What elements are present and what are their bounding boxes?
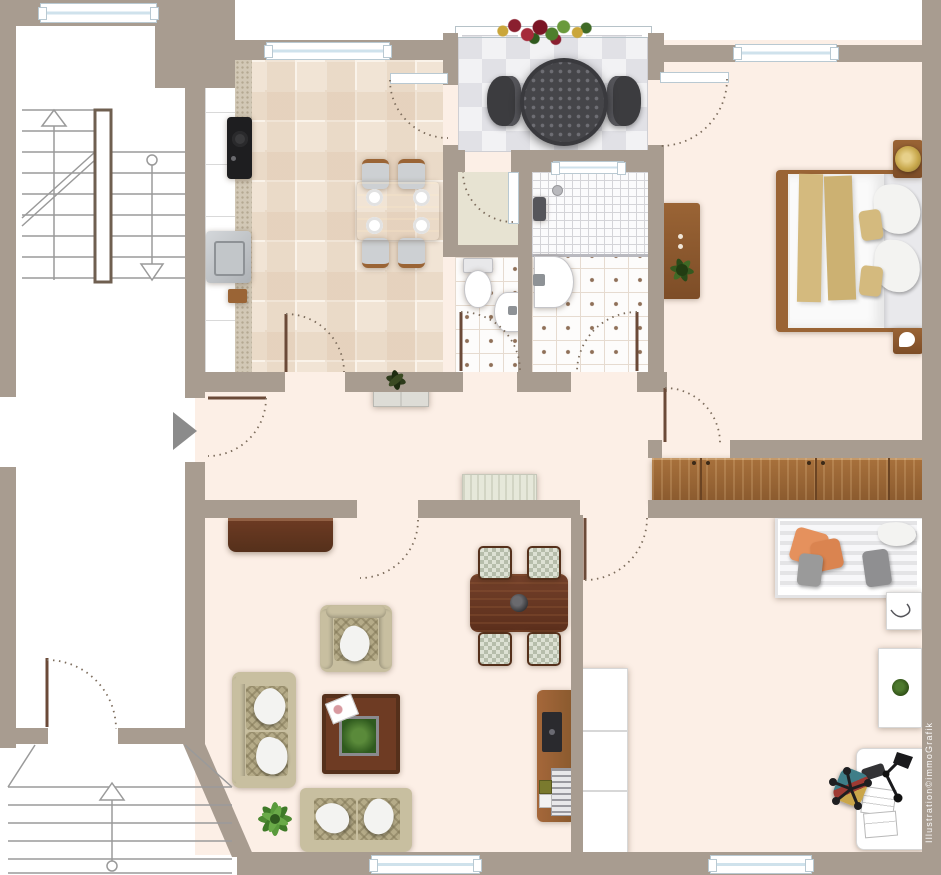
white-wardrobe: [578, 668, 628, 854]
plate: [366, 189, 383, 206]
wall: [237, 852, 941, 875]
wc-faucet: [508, 306, 517, 315]
arc-corridor-door: [47, 660, 116, 729]
wall: [0, 728, 48, 744]
media-shelf: [551, 768, 572, 816]
bed-cushion-tan: [858, 209, 884, 242]
wall: [345, 372, 455, 392]
daybed-pillow-gray: [796, 553, 823, 587]
armchair-arm: [320, 609, 333, 669]
shower-area: [532, 172, 648, 257]
coffee-table-plant: [339, 716, 379, 756]
sofa-arm: [300, 788, 312, 846]
armchair-arm: [379, 609, 392, 669]
dresser-knob: [678, 244, 683, 249]
wardrobe-handle: [807, 461, 811, 465]
kitchen-countertop: [235, 60, 252, 372]
paper-sheet: [863, 811, 898, 839]
wardrobe-division: [888, 458, 890, 502]
office-nightstand: [886, 592, 922, 630]
wall: [118, 728, 188, 744]
plate: [366, 217, 383, 234]
kitchen-chair: [362, 238, 389, 268]
shower-drain: [552, 185, 563, 196]
window-office: [710, 855, 812, 874]
dining-chair: [478, 546, 512, 580]
cooktop-knob: [231, 156, 236, 161]
dining-chair: [527, 546, 561, 580]
dresser-knob: [678, 234, 683, 239]
wardrobe-handle: [821, 461, 825, 465]
media-box: [539, 794, 552, 808]
armchair-back: [326, 605, 386, 618]
window-kitchen: [266, 42, 390, 60]
living-sideboard: [228, 518, 333, 552]
sofa-left: [232, 672, 296, 788]
balcony-round-table: [520, 58, 608, 146]
plate: [413, 217, 430, 234]
bed-cushion-tan: [858, 265, 883, 297]
wall: [518, 150, 532, 392]
sofa-bottom: [300, 788, 412, 852]
tv-dot: [549, 729, 555, 735]
balcony-door-leaf-bedroom: [660, 72, 729, 83]
flower-box: [495, 16, 593, 46]
dining-chair: [478, 632, 512, 666]
bath-faucet: [533, 274, 545, 286]
staircase-top: [22, 110, 185, 282]
wall: [185, 0, 205, 398]
daybed-pillow-gray: [862, 548, 893, 587]
sofa-arm: [236, 672, 292, 684]
balcony-chair-left: [487, 76, 521, 126]
wall: [418, 500, 580, 518]
hall-bench: [462, 474, 537, 503]
sofa-arm: [236, 776, 292, 788]
kitchen-sink-basin: [214, 241, 245, 276]
sofa-arm: [400, 788, 412, 846]
plate: [413, 189, 430, 206]
side-table-plant: [892, 679, 909, 696]
wall: [195, 372, 285, 392]
sofa-back: [304, 840, 408, 852]
wall: [517, 372, 571, 392]
watermark-text: Illustration©immoGrafik: [924, 722, 934, 843]
window-bathroom: [553, 161, 624, 174]
balcony-door-leaf-vestibule: [508, 172, 519, 224]
wall: [648, 440, 662, 458]
bed-blanket-strip: [824, 176, 856, 301]
nightstand-dish: [899, 332, 915, 347]
entrance-arrow: [173, 412, 197, 450]
window-living: [371, 855, 480, 874]
balcony-chair-right: [607, 76, 641, 126]
wardrobe-division: [815, 458, 817, 502]
wall: [637, 372, 667, 392]
bed-blanket-strip: [797, 174, 823, 302]
wall: [443, 245, 532, 257]
table-bowl: [510, 594, 528, 612]
wardrobe-division: [700, 458, 702, 502]
media-box: [539, 780, 552, 794]
wall: [0, 467, 16, 748]
window-bedroom: [735, 44, 837, 62]
wall: [730, 440, 925, 458]
cutting-board: [228, 289, 247, 303]
sofa-back: [232, 676, 245, 784]
dining-chair: [527, 632, 561, 666]
wall: [648, 500, 925, 518]
bedroom-dresser: [660, 203, 700, 299]
wardrobe-handle: [706, 461, 710, 465]
window-stairwell: [40, 3, 157, 23]
wall: [455, 372, 463, 392]
wall: [648, 145, 664, 392]
wardrobe-handle: [692, 461, 696, 465]
wall: [0, 0, 16, 397]
armchair: [320, 605, 392, 672]
wall: [195, 500, 357, 518]
cooktop: [227, 117, 252, 179]
floor-plan: Illustration©immoGrafik: [0, 0, 941, 875]
wall: [571, 515, 583, 852]
gold-table-lamp: [895, 146, 921, 172]
toilet-bowl: [464, 270, 492, 308]
shower-fixture: [533, 197, 546, 221]
wall: [443, 150, 465, 172]
kitchen-cabinets: [205, 60, 237, 374]
kitchen-chair: [398, 238, 425, 268]
balcony-door-leaf-kitchen: [390, 73, 448, 84]
cooktop-burner: [232, 131, 248, 147]
